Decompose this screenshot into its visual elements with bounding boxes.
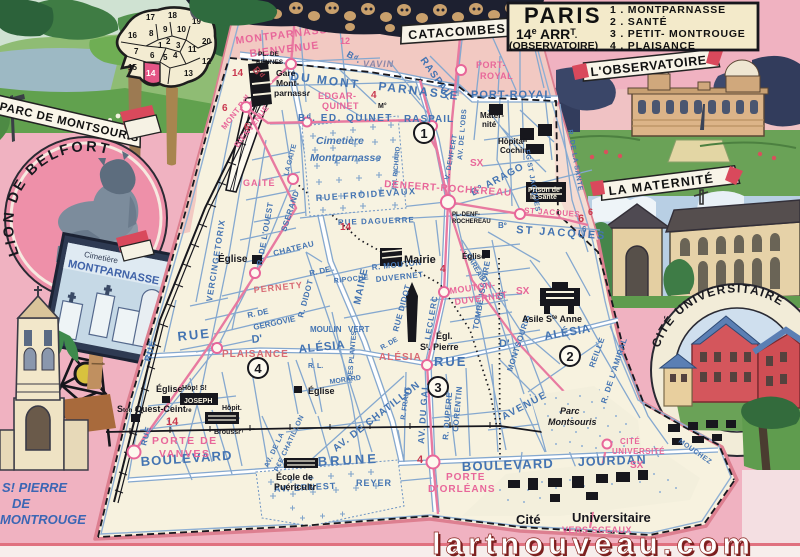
svg-text:14: 14 (146, 68, 156, 78)
svg-text:6: 6 (582, 225, 587, 234)
svg-text:SX: SX (470, 158, 484, 169)
svg-text:D'ORLÉANS: D'ORLÉANS (428, 482, 496, 495)
svg-text:4: 4 (440, 264, 446, 275)
svg-text:PORT-: PORT- (476, 60, 506, 70)
svg-text:S! PIERRE: S! PIERRE (2, 480, 67, 495)
svg-text:Église: Église (156, 384, 183, 394)
svg-text:2: 2 (566, 349, 573, 364)
svg-text:4: 4 (417, 454, 424, 466)
svg-text:Broussɾᵀ: Broussɾᵀ (214, 429, 244, 436)
svg-text:Mairie: Mairie (404, 254, 436, 266)
svg-text:6: 6 (588, 207, 593, 217)
svg-text:2 . SANTÉ: 2 . SANTÉ (610, 15, 667, 28)
svg-text:Mater-: Mater- (480, 111, 504, 120)
svg-text:SX: SX (630, 460, 644, 471)
svg-text:4: 4 (254, 361, 262, 376)
svg-text:15: 15 (128, 63, 137, 72)
svg-text:1 . MONTPARNASSE: 1 . MONTPARNASSE (610, 4, 726, 16)
svg-text:EDGAR-: EDGAR- (318, 91, 357, 101)
svg-text:17: 17 (146, 13, 155, 22)
svg-text:3: 3 (434, 380, 441, 395)
svg-text:Cimetière: Cimetière (316, 135, 364, 147)
svg-text:lartnouveau.com: lartnouveau.com (432, 526, 755, 557)
svg-text:parnassɾ: parnassɾ (274, 88, 311, 98)
svg-text:MOULIN: MOULIN (310, 325, 342, 334)
svg-text:École de: École de (276, 472, 313, 482)
svg-text:Hôpitaᴹ: Hôpitaᴹ (498, 137, 527, 146)
svg-text:1: 1 (158, 41, 163, 50)
svg-text:Mont-: Mont- (276, 78, 299, 88)
svg-text:18: 18 (168, 11, 177, 20)
svg-text:(OBSERVATOIRE): (OBSERVATOIRE) (509, 40, 598, 52)
svg-text:Bº: Bº (498, 221, 507, 230)
svg-text:6: 6 (578, 213, 584, 225)
svg-text:16: 16 (128, 31, 137, 40)
svg-text:Gare: Gare (276, 68, 296, 78)
svg-text:4: 4 (173, 51, 178, 60)
svg-text:RUE: RUE (434, 354, 467, 369)
svg-text:4: 4 (371, 90, 377, 101)
svg-text:6: 6 (222, 103, 228, 114)
svg-text:PORTE: PORTE (446, 472, 485, 483)
svg-text:PARIS: PARIS (524, 3, 602, 28)
svg-text:6: 6 (244, 122, 250, 133)
svg-text:8: 8 (149, 29, 154, 38)
svg-text:14: 14 (232, 68, 244, 79)
svg-text:12: 12 (340, 36, 350, 46)
svg-text:Universitaire: Universitaire (572, 510, 651, 525)
svg-text:MONTROUGE: MONTROUGE (0, 512, 86, 527)
svg-text:1: 1 (420, 126, 427, 141)
svg-text:PORT-ROYAL: PORT-ROYAL (471, 89, 552, 101)
svg-text:10: 10 (177, 25, 186, 34)
svg-text:Prison de: Prison de (528, 187, 560, 194)
svg-text:Cochin: Cochin (500, 146, 527, 155)
svg-text:UNIVERSITÉ: UNIVERSITÉ (612, 447, 665, 456)
svg-text:5: 5 (163, 53, 168, 62)
svg-text:GAITÉ: GAITÉ (243, 178, 276, 188)
svg-text:7: 7 (134, 47, 139, 56)
svg-text:la Santé: la Santé (530, 194, 557, 201)
svg-text:3 . PETIT- MONTROUGE: 3 . PETIT- MONTROUGE (610, 28, 746, 40)
svg-text:ROYAL: ROYAL (480, 71, 513, 81)
svg-text:BRUNE: BRUNE (317, 451, 379, 469)
svg-text:9: 9 (163, 25, 168, 34)
svg-text:Église: Église (462, 252, 486, 261)
svg-text:6: 6 (150, 51, 155, 60)
svg-text:PL-DENF-: PL-DENF- (452, 212, 480, 218)
svg-text:Hôpit.: Hôpit. (222, 405, 242, 412)
svg-text:14: 14 (340, 222, 352, 233)
svg-text:Bᵈ. ED. QUINET: Bᵈ. ED. QUINET (298, 113, 393, 124)
svg-text:R. L.: R. L. (308, 363, 323, 370)
svg-text:14: 14 (166, 416, 179, 428)
svg-text:Puéricultɾ: Puéricultɾ (274, 482, 317, 492)
svg-text:VAVIN: VAVIN (363, 59, 394, 69)
svg-text:3: 3 (176, 41, 181, 50)
svg-text:M°: M° (378, 102, 387, 110)
svg-text:Montparnasse: Montparnasse (310, 152, 381, 164)
svg-text:St. Pierre: St. Pierre (420, 342, 459, 352)
svg-text:QUINET: QUINET (322, 101, 359, 111)
svg-text:RENNES: RENNES (256, 59, 284, 66)
svg-text:ALÉSIA: ALÉSIA (379, 350, 422, 363)
svg-text:ROCHEREAU: ROCHEREAU (452, 219, 491, 225)
svg-text:Hôp! S!: Hôp! S! (182, 385, 207, 392)
svg-text:Parc: Parc (560, 406, 580, 416)
svg-text:D': D' (499, 338, 510, 350)
svg-text:D': D' (251, 333, 263, 346)
svg-text:DE: DE (12, 496, 30, 511)
svg-text:2: 2 (166, 37, 171, 46)
svg-text:PL. DE: PL. DE (258, 51, 280, 58)
svg-text:4 . PLAISANCE: 4 . PLAISANCE (610, 40, 696, 52)
svg-text:Cité: Cité (516, 512, 541, 527)
svg-text:Montsouris: Montsouris (548, 417, 597, 427)
svg-text:VANVES: VANVES (159, 448, 210, 460)
svg-text:JOSEPH: JOSEPH (184, 398, 212, 405)
svg-text:PLAISANCE: PLAISANCE (222, 349, 289, 360)
svg-text:CITÉ: CITÉ (620, 437, 640, 446)
svg-text:RASPAIL: RASPAIL (404, 114, 454, 125)
svg-text:11: 11 (188, 45, 197, 54)
svg-text:PORTE DE: PORTE DE (152, 435, 218, 447)
svg-text:Église: Église (308, 386, 335, 396)
svg-text:Égl.: Égl. (436, 331, 453, 341)
svg-text:nité: nité (482, 120, 497, 129)
svg-text:SX: SX (516, 286, 530, 297)
svg-text:13: 13 (184, 69, 193, 78)
svg-text:Église: Église (218, 252, 248, 265)
svg-text:12: 12 (202, 57, 211, 66)
svg-text:REYER: REYER (356, 478, 392, 488)
svg-text:20: 20 (202, 37, 211, 46)
